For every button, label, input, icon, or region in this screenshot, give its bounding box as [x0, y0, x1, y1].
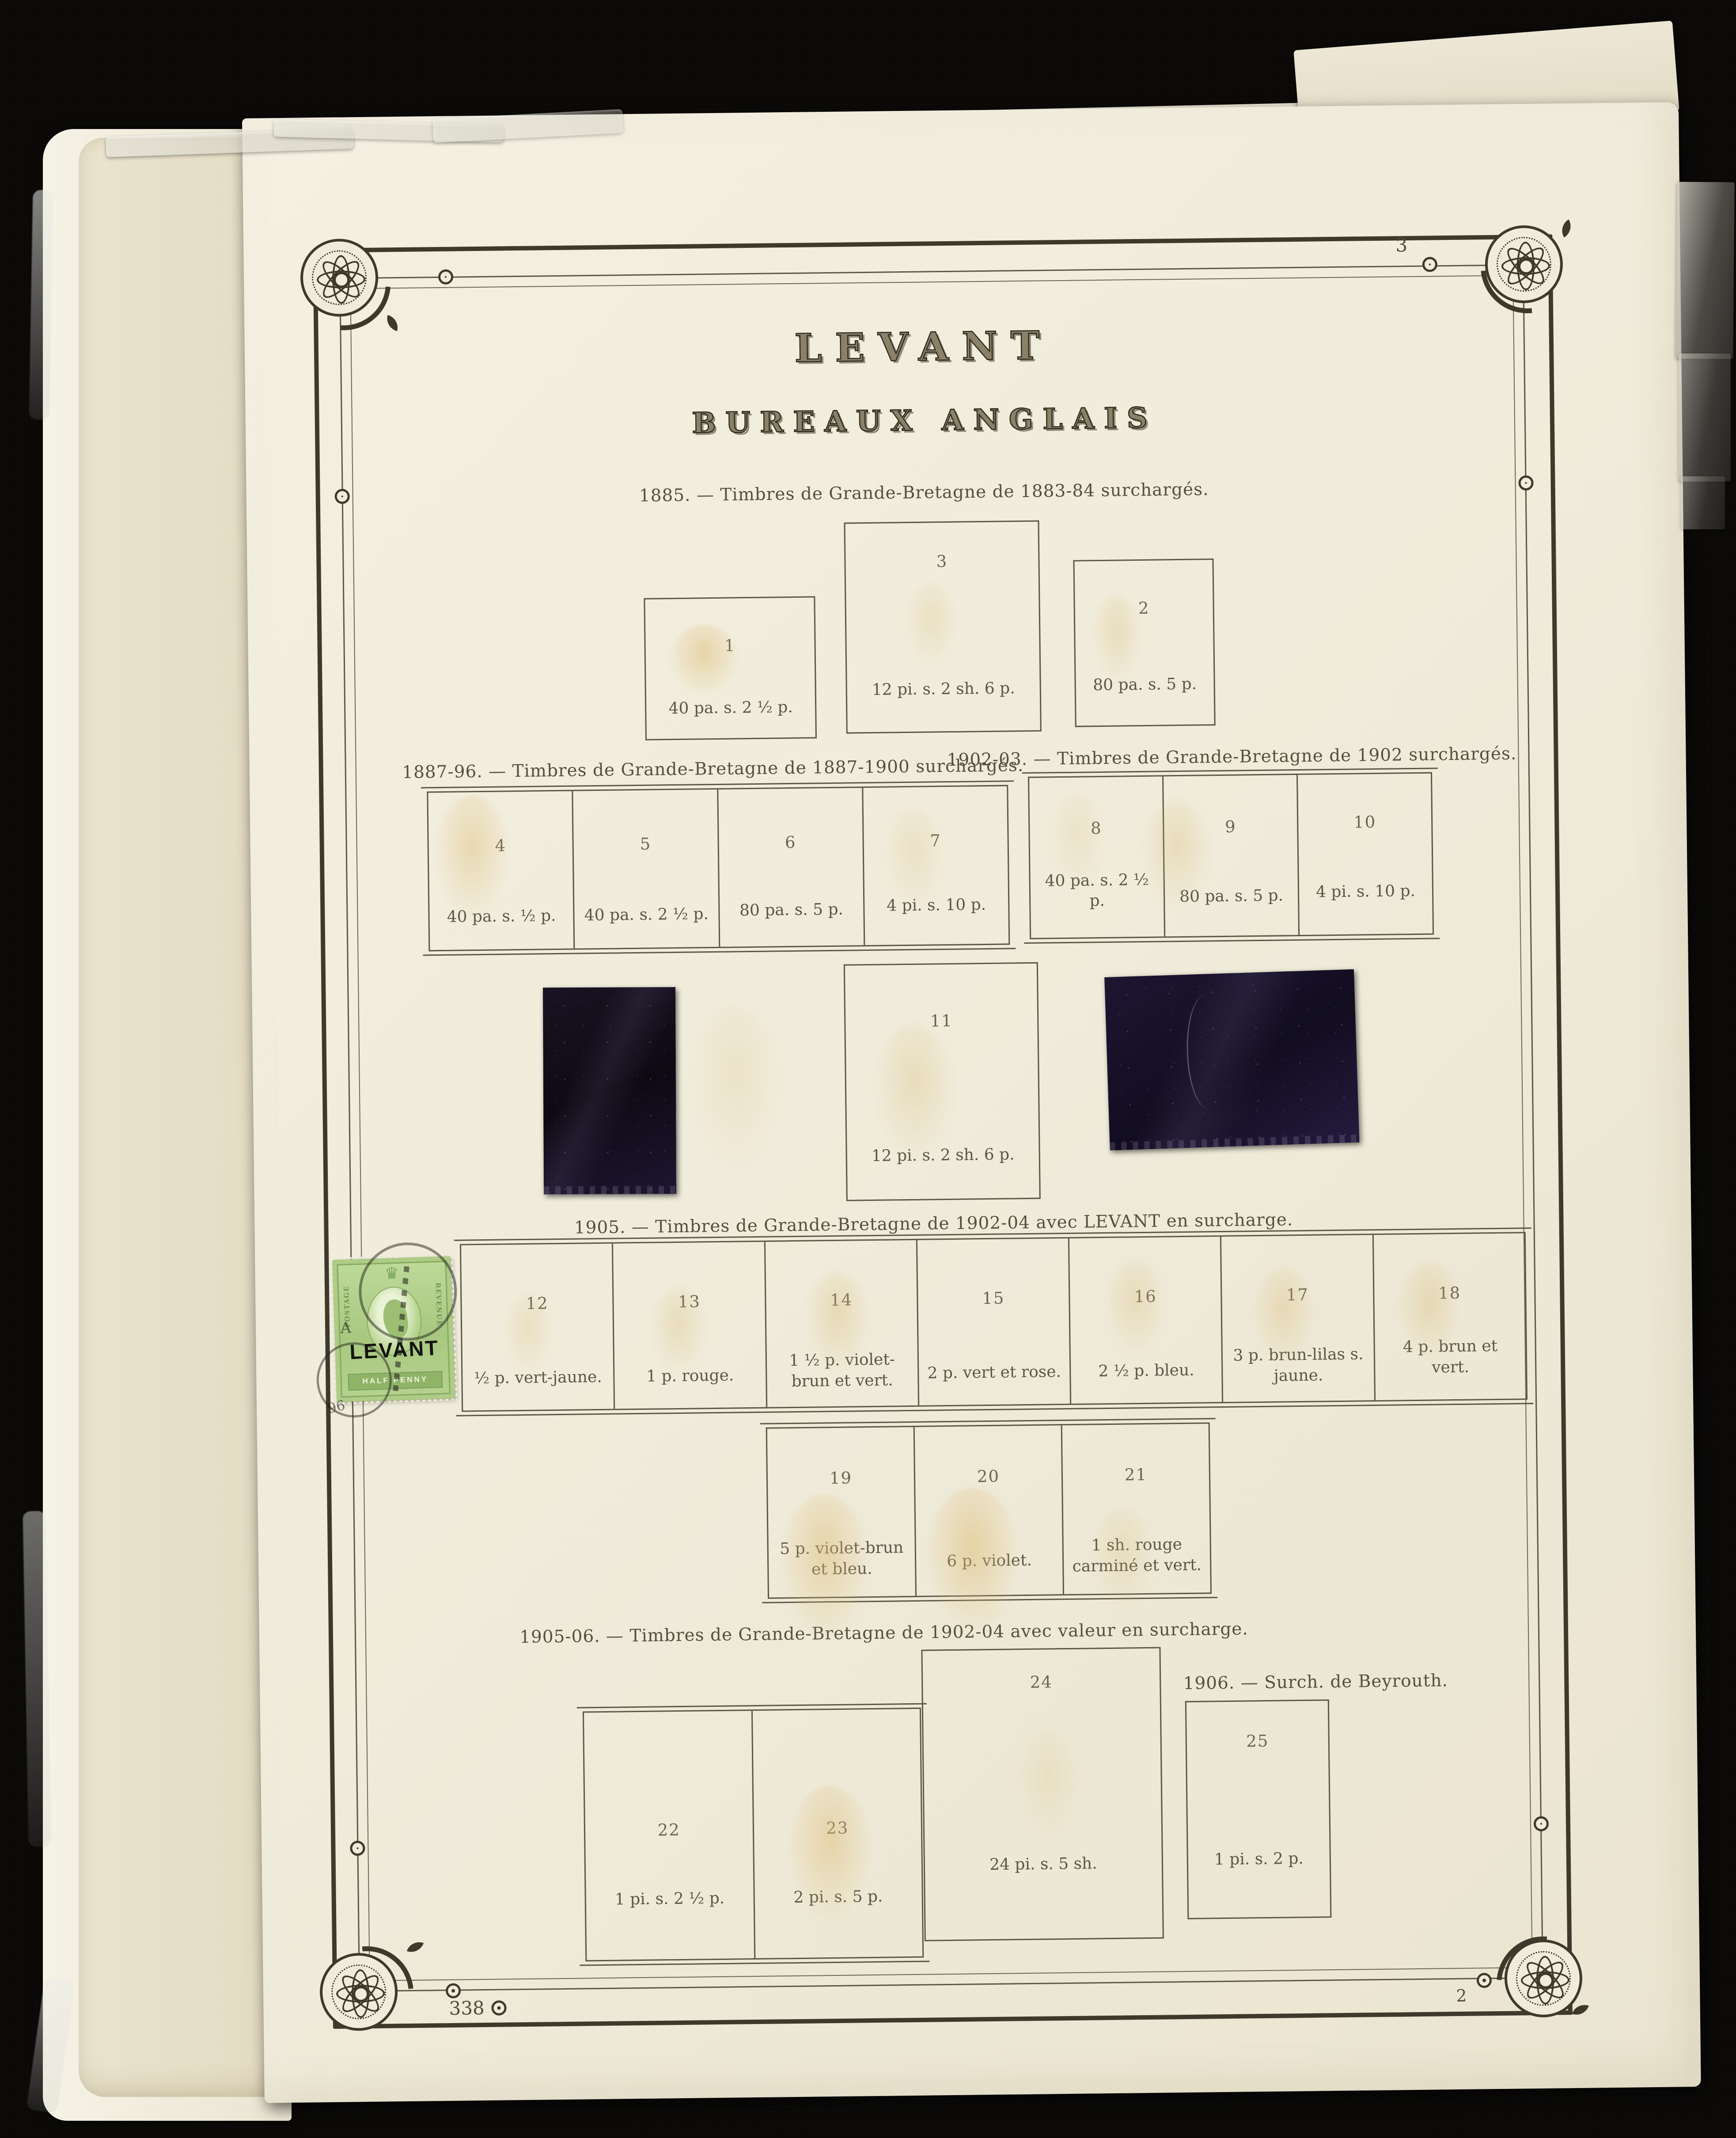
stamp-box-value: 4 pi. s. 10 p.: [1299, 881, 1433, 903]
stamp-grid-1905: 12 ½ p. vert-jaune. 13 1 p. rouge. 14 1 …: [460, 1232, 1528, 1412]
stamp-box-10: 10 4 pi. s. 10 p.: [1296, 774, 1433, 935]
hinge-stain: [649, 1287, 708, 1376]
stamp-grid-1905-06: 22 1 pi. s. 2 ½ p. 23 2 pi. s. 5 p.: [583, 1708, 924, 1962]
stamp-box-number: 10: [1298, 812, 1431, 832]
corner-rosette-bl: [319, 1952, 398, 2031]
stamp-box-15: 15 2 p. vert et rose.: [916, 1238, 1070, 1405]
stamp-box-25: 25 1 pi. s. 2 p.: [1185, 1699, 1332, 1919]
mounted-dark-stamp-left: [543, 987, 676, 1194]
stamp-box-value: 80 pa. s. 5 p.: [1076, 674, 1214, 696]
stamp-box-number: 25: [1187, 1731, 1328, 1752]
printed-layout: 3 338 2 LEVANT BUREAUX ANGLAIS 1885. — T…: [242, 102, 1701, 2103]
border-node: [335, 489, 350, 504]
plate-number-dot-icon: [492, 2000, 507, 2015]
stamp-box-number: 22: [585, 1820, 753, 1841]
page-title: LEVANT: [794, 322, 1053, 371]
tape-strip: [1675, 182, 1734, 359]
page-number-top-right: 3: [1395, 234, 1407, 256]
tape-strip: [1681, 476, 1725, 529]
page-number-bottom-right: 2: [1456, 1986, 1467, 2005]
stamp-box-22: 22 1 pi. s. 2 ½ p.: [584, 1711, 754, 1960]
stamp-box-number: 3: [845, 551, 1038, 572]
postmark-letter: A: [340, 1319, 352, 1337]
corner-rosette-br: [1504, 1939, 1583, 2018]
hinge-stain: [902, 582, 960, 671]
border-node: [446, 1983, 461, 1998]
stamp-box-value: 2 ½ p. bleu.: [1071, 1360, 1222, 1382]
stamp-box-number: 5: [574, 834, 718, 854]
plate-number: 338: [449, 1997, 507, 2019]
stamp-box-number: 15: [918, 1288, 1069, 1309]
mounted-dark-stamp-right: [1104, 969, 1359, 1151]
page-subtitle: BUREAUX ANGLAIS: [692, 402, 1157, 440]
stamp-box-value: 12 pi. s. 2 sh. 6 p.: [847, 1144, 1039, 1167]
border-node: [1518, 475, 1533, 490]
stamp-box-number: 6: [719, 832, 863, 853]
stamp-box-value: 24 pi. s. 5 sh.: [925, 1853, 1162, 1876]
stamp-box-value: 1 pi. s. 2 p.: [1188, 1848, 1330, 1870]
glassine-sliver: [29, 190, 53, 420]
stamp-box-6: 6 80 pa. s. 5 p.: [717, 788, 864, 947]
border-node: [438, 270, 453, 285]
levant-half-penny-stamp: ♛ POSTAGE REVENUE HALF PENNY LEVANT A 96: [332, 1256, 455, 1402]
corner-rosette-tl: [300, 239, 379, 317]
border-node: [1477, 1973, 1492, 1988]
border-node: [1534, 1816, 1549, 1831]
stamp-box-value: 1 pi. s. 2 ½ p.: [586, 1888, 754, 1910]
stamp-box-number: 19: [768, 1468, 914, 1489]
plate-number-text: 338: [449, 1997, 485, 2019]
stamp-box-number: 11: [845, 1010, 1037, 1032]
border-node: [1422, 257, 1437, 272]
stamp-box-number: 24: [923, 1671, 1160, 1693]
stamp-box-value: 40 pa. s. ½ p.: [429, 906, 573, 928]
stamp-box-value: 40 pa. s. 2 ½ p.: [646, 697, 815, 719]
stamp-box-value: 12 pi. s. 2 sh. 6 p.: [847, 678, 1040, 701]
stamp-box-value: 40 pa. s. 2 ½ p.: [575, 904, 719, 926]
stamp-box-number: 20: [915, 1466, 1061, 1487]
border-node: [350, 1841, 365, 1856]
stamp-box-value: 80 pa. s. 5 p.: [720, 899, 864, 921]
stamp-box-number: 21: [1063, 1464, 1209, 1485]
corner-rosette-tr: [1485, 225, 1563, 304]
stamp-box-value: 2 p. vert et rose.: [919, 1362, 1070, 1384]
album-page: 3 338 2 LEVANT BUREAUX ANGLAIS 1885. — T…: [242, 102, 1701, 2103]
stamp-box-5: 5 40 pa. s. 2 ½ p.: [572, 790, 719, 949]
section-caption-1906: 1906. — Surch. de Beyrouth.: [1183, 1671, 1448, 1694]
tape-strip: [1679, 353, 1731, 482]
